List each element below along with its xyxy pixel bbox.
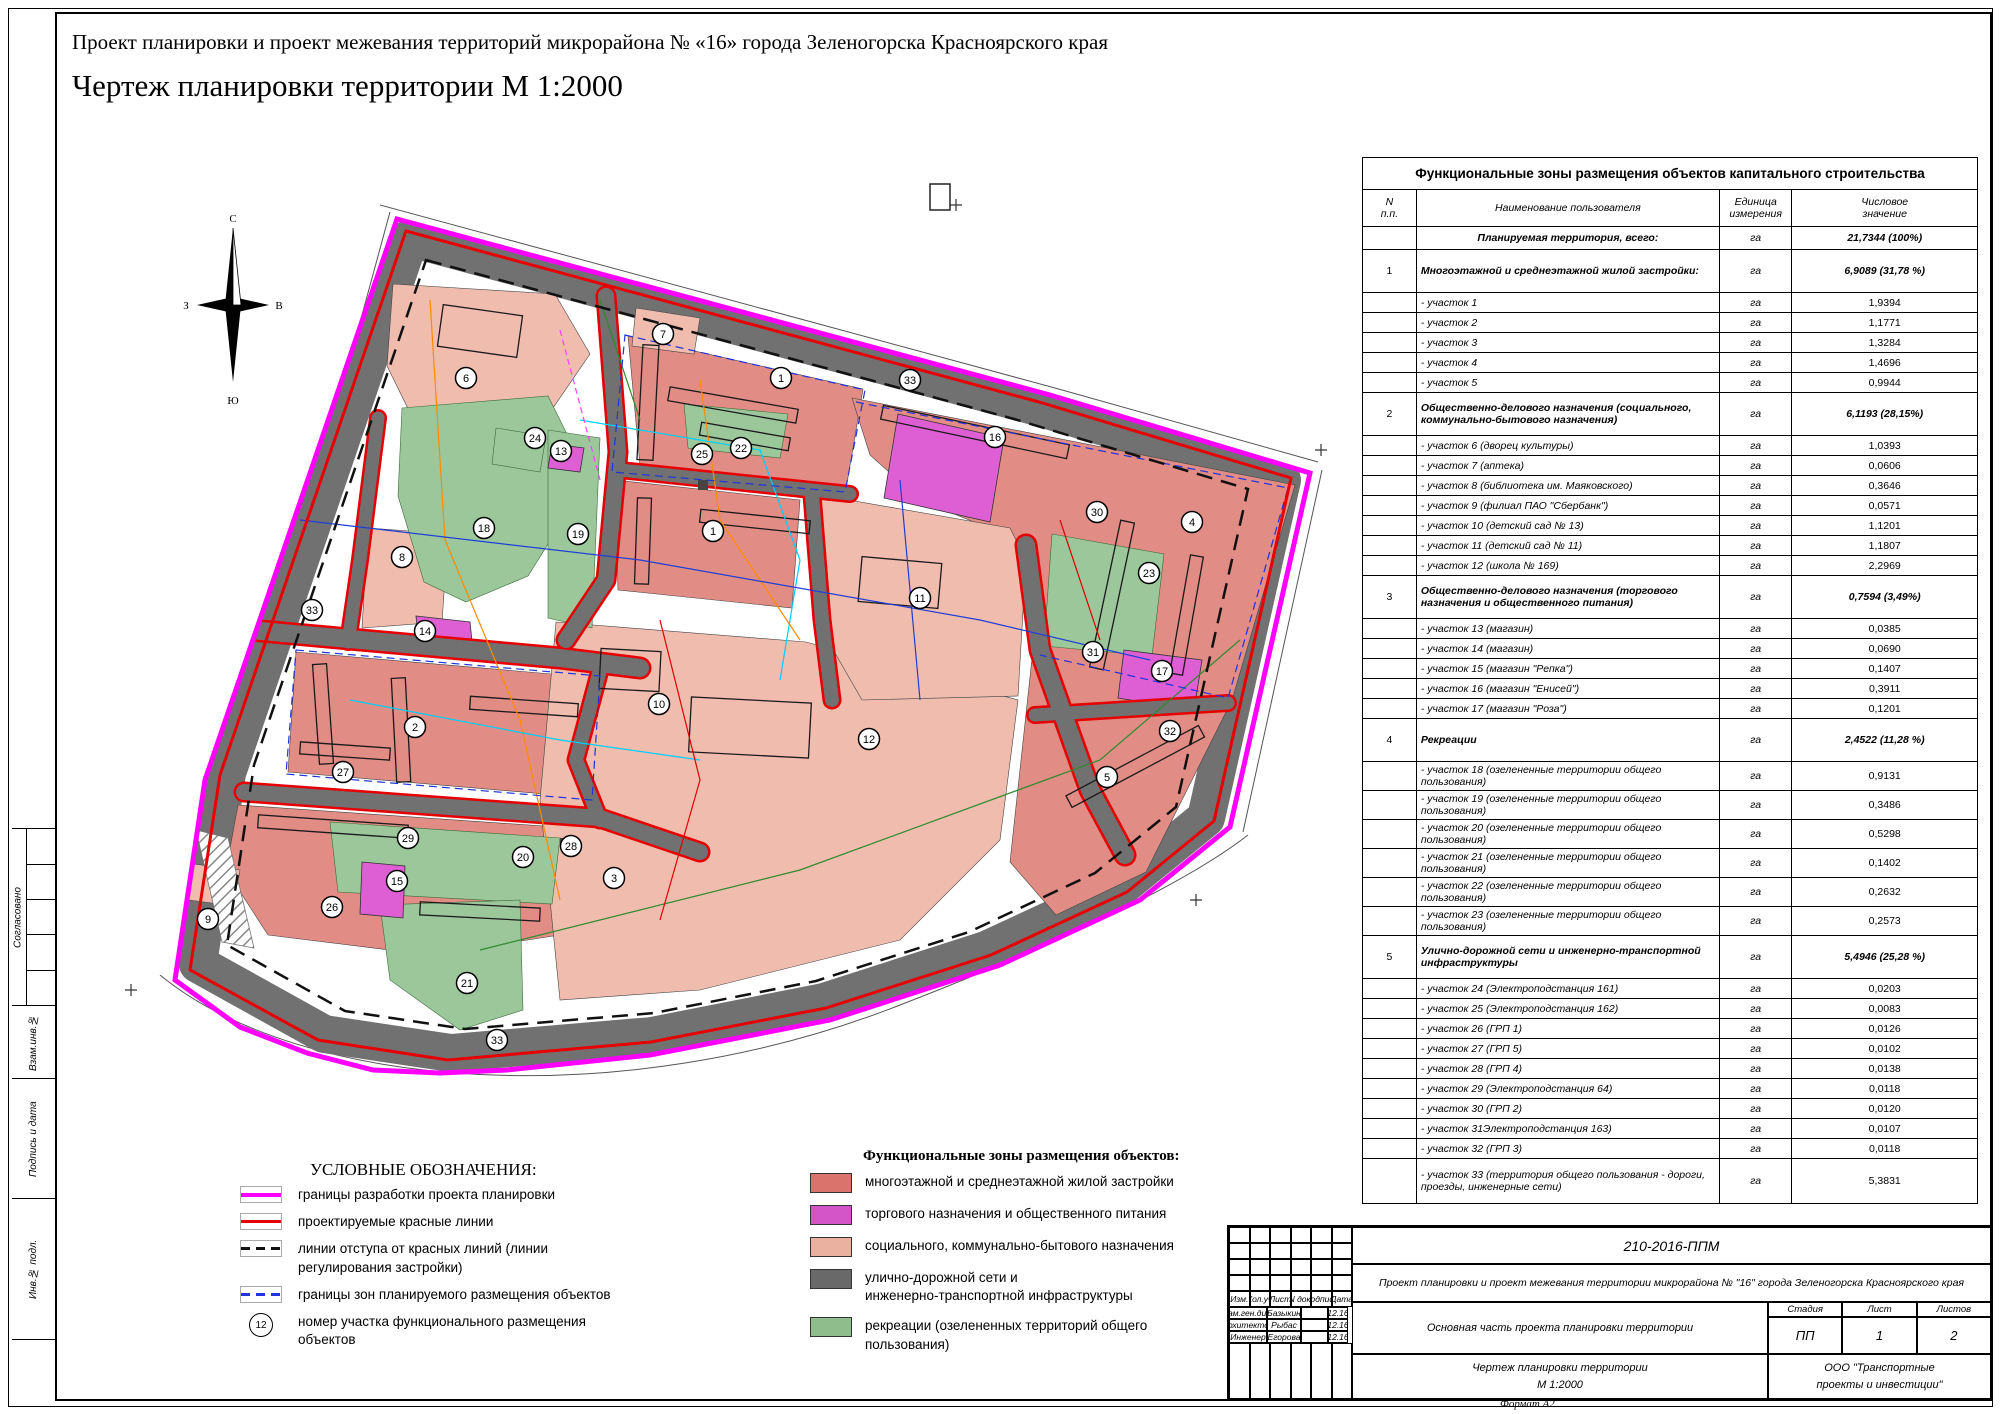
table-row: 5Улично-дорожной сети и инженерно-трансп… (1363, 936, 1978, 979)
plot-label-number: 5 (1104, 772, 1110, 784)
revision-header-cell: Изм. (1229, 1291, 1250, 1307)
project-title: Проект планировки и проект межевания тер… (72, 30, 1108, 55)
table-row: - участок 33 (территория общего пользова… (1363, 1159, 1978, 1204)
territory-plan-map: С Ю З В 67133162413252218191830423113314… (85, 160, 1355, 1100)
legend-zone-item: рекреации (озелененных территорий общего… (810, 1317, 1230, 1353)
strip-label-approved: Согласовано (10, 829, 26, 1006)
table-row: - участок 2га1,1771 (1363, 313, 1978, 333)
table-row: - участок 20 (озелененные территории общ… (1363, 820, 1978, 849)
table-row: 4Рекреациига2,4522 (11,28 %) (1363, 719, 1978, 762)
col-header-unit: Единица измерения (1719, 190, 1791, 227)
table-row: - участок 1га1,9394 (1363, 293, 1978, 313)
plot-label-number: 33 (306, 605, 318, 617)
table-row: 2Общественно-делового назначения (социал… (1363, 393, 1978, 436)
table-row: 3Общественно-делового назначения (торгов… (1363, 576, 1978, 619)
strip-podpis-box: Подпись и дата (12, 1078, 55, 1199)
strip-vzam-box: Взам.инв.№ (12, 1005, 55, 1079)
stamp-project-name: Проект планировки и проект межевания тер… (1352, 1264, 1991, 1302)
setback-line-swatch (240, 1240, 282, 1257)
zoneborder-line-swatch (240, 1286, 282, 1303)
plot-label-number: 21 (461, 978, 473, 990)
plot-number-symbol: 12 (249, 1313, 273, 1337)
sheets-value: 2 (1917, 1317, 1991, 1354)
plot-label-number: 26 (326, 902, 338, 914)
plot-label-number: 29 (402, 833, 414, 845)
plot-label-number: 6 (463, 373, 469, 385)
staff-row: ИнженерЕгорова12.16 (1229, 1331, 1352, 1343)
table-row: - участок 12 (школа № 169)га2,2969 (1363, 556, 1978, 576)
revision-header-cell: N док. (1291, 1291, 1312, 1307)
plot-label-number: 2 (412, 722, 418, 734)
legend-zones-title: Функциональные зоны размещения объектов: (863, 1148, 1230, 1165)
table-row: - участок 31Электроподстанция 163)га0,01… (1363, 1119, 1978, 1139)
boundary-line-swatch (240, 1186, 282, 1203)
plot-label-number: 7 (660, 329, 666, 341)
map-stamp-symbol (930, 184, 950, 210)
legend-zone-label: рекреации (озелененных территорий общего… (865, 1317, 1147, 1353)
table-row: - участок 26 (ГРП 1)га0,0126 (1363, 1019, 1978, 1039)
plot-label-number: 8 (399, 552, 405, 564)
legend-zone-label: многоэтажной и среднеэтажной жилой застр… (865, 1173, 1174, 1191)
table-row: - участок 13 (магазин)га0,0385 (1363, 619, 1978, 639)
strip-label-inv: Инв.№ подл. (12, 1199, 55, 1339)
legend-zone-item: улично-дорожной сети и инженерно-транспо… (810, 1269, 1230, 1305)
plot-label-number: 33 (904, 375, 916, 387)
table-row: Планируемая территория, всего:га21,7344 … (1363, 227, 1978, 250)
plot-label-number: 30 (1091, 507, 1103, 519)
table-row: - участок 18 (озелененные территории общ… (1363, 762, 1978, 791)
table-row: - участок 9 (филиал ПАО "Сбербанк")га0,0… (1363, 496, 1978, 516)
plot-label-number: 4 (1189, 517, 1195, 529)
stamp-drawing-name: Чертеж планировки территории М 1:2000 (1352, 1354, 1768, 1399)
zone-residential-1b (615, 480, 800, 608)
zone-color-swatch (810, 1173, 852, 1193)
revision-header-cell: Кол.уч (1250, 1291, 1271, 1307)
compass-west-label: З (183, 300, 189, 312)
plot-label-number: 28 (565, 841, 577, 853)
plot-label-number: 1 (778, 373, 784, 385)
col-header-num: N п.п. (1363, 190, 1417, 227)
table-row: - участок 16 (магазин "Енисей")га0,3911 (1363, 679, 1978, 699)
table-row: 1Многоэтажной и среднеэтажной жилой заст… (1363, 250, 1978, 293)
plot-label-number: 16 (989, 432, 1001, 444)
plot-label-number: 13 (555, 446, 567, 458)
table-row: - участок 21 (озелененные территории общ… (1363, 849, 1978, 878)
zone-color-swatch (810, 1269, 852, 1289)
plot-label-number: 25 (696, 449, 708, 461)
drawing-sheet: Согласовано Взам.инв.№ Подпись и дата Ин… (0, 0, 2000, 1414)
table-row: - участок 19 (озелененные территории общ… (1363, 791, 1978, 820)
legend-symbols: УСЛОВНЫЕ ОБОЗНАЧЕНИЯ: границы разработки… (240, 1160, 660, 1359)
table-row: - участок 6 (дворец культуры)га1,0393 (1363, 436, 1978, 456)
table-row: - участок 30 (ГРП 2)га0,0120 (1363, 1099, 1978, 1119)
zone-green-23 (1044, 534, 1164, 656)
zone-color-swatch (810, 1317, 852, 1337)
col-header-name: Наименование пользователя (1416, 190, 1719, 227)
format-note: Формат А2 (1500, 1398, 1555, 1410)
plot-label-number: 20 (517, 852, 529, 864)
plot-label-number: 10 (653, 699, 665, 711)
revision-table: Изм.Кол.учЛистN док.ПодписьДата Зам.ген.… (1229, 1227, 1352, 1399)
table-row: - участок 32 (ГРП 3)га0,0118 (1363, 1139, 1978, 1159)
sheet-value: 1 (1842, 1317, 1916, 1354)
stage-value: ПП (1768, 1317, 1842, 1354)
col-header-value: Числовое значение (1792, 190, 1978, 227)
compass-east-label: В (275, 300, 282, 312)
compass-north-label: С (229, 213, 236, 225)
plot-label-number: 9 (205, 914, 211, 926)
functional-zones-table: Функциональные зоны размещения объектов … (1362, 157, 1978, 1204)
plot-label-number: 33 (491, 1035, 503, 1047)
table-row: - участок 15 (магазин "Репка")га0,1407 (1363, 659, 1978, 679)
strip-inv-box: Инв.№ подл. (12, 1198, 55, 1340)
stage-label: Стадия (1768, 1302, 1842, 1317)
legend-symbol-label: границы разработки проекта планировки (298, 1186, 555, 1204)
plot-label-number: 3 (611, 873, 617, 885)
drawing-title: Чертеж планировки территории М 1:2000 (72, 68, 623, 104)
revision-header-cell: Лист (1270, 1291, 1291, 1307)
legend-symbol-item: линии отступа от красных линий (линии ре… (240, 1240, 660, 1276)
revision-header-cell: Дата (1332, 1291, 1353, 1307)
table-row: - участок 3га1,3284 (1363, 333, 1978, 353)
plot-label-number: 15 (391, 876, 403, 888)
sheet-label: Лист (1842, 1302, 1916, 1317)
revision-header-cell: Подпись (1311, 1291, 1332, 1307)
stamp-section-name: Основная часть проекта планировки террит… (1352, 1302, 1768, 1354)
plot-label-number: 24 (529, 433, 541, 445)
legend-zone-item: торгового назначения и общественного пит… (810, 1205, 1230, 1225)
legend-symbol-item: 12номер участка функционального размещен… (240, 1313, 660, 1349)
table-row: - участок 7 (аптека)га0,0606 (1363, 456, 1978, 476)
plot-label-number: 14 (419, 626, 431, 638)
table-title: Функциональные зоны размещения объектов … (1363, 158, 1978, 190)
zone-color-swatch (810, 1237, 852, 1257)
plot-label-number: 18 (478, 523, 490, 535)
staff-row: Зам.ген.дир.Базыкин12.16 (1229, 1307, 1352, 1319)
legend-symbol-label: линии отступа от красных линий (линии ре… (298, 1240, 548, 1276)
legend-zone-label: социального, коммунально-бытового назнач… (865, 1237, 1174, 1255)
strip-label-vzam: Взам.инв.№ (12, 1006, 55, 1079)
plot-label-number: 12 (863, 734, 875, 746)
table-row: - участок 10 (детский сад № 13)га1,1201 (1363, 516, 1978, 536)
legend-zone-item: социального, коммунально-бытового назнач… (810, 1237, 1230, 1257)
legend-zone-label: торгового назначения и общественного пит… (865, 1205, 1166, 1223)
revision-header-row: Изм.Кол.учЛистN док.ПодписьДата (1229, 1291, 1352, 1307)
table-row: - участок 11 (детский сад № 11)га1,1807 (1363, 536, 1978, 556)
document-number: 210-2016-ППМ (1352, 1227, 1991, 1264)
plot-label-number: 32 (1164, 726, 1176, 738)
legend-zones: Функциональные зоны размещения объектов:… (810, 1148, 1230, 1366)
plot-label-number: 19 (572, 529, 584, 541)
plot-label-number: 11 (914, 593, 925, 605)
table-row: - участок 5га0,9944 (1363, 373, 1978, 393)
redline-line-swatch (240, 1213, 282, 1230)
legend-symbol-label: границы зон планируемого размещения объе… (298, 1286, 611, 1304)
table-header-row: N п.п. Наименование пользователя Единица… (1363, 190, 1978, 227)
sheets-label: Листов (1917, 1302, 1991, 1317)
table-row: - участок 22 (озелененные территории общ… (1363, 878, 1978, 907)
legend-symbols-title: УСЛОВНЫЕ ОБОЗНАЧЕНИЯ: (310, 1160, 660, 1180)
table-row: - участок 29 (Электроподстанция 64)га0,0… (1363, 1079, 1978, 1099)
zone-park-18 (398, 396, 566, 602)
stamp-organization: ООО "Транспортные проекты и инвестиции" (1768, 1354, 1991, 1399)
plot-label-number: 27 (337, 767, 349, 779)
table-row: - участок 14 (магазин)га0,0690 (1363, 639, 1978, 659)
table-row: - участок 28 (ГРП 4)га0,0138 (1363, 1059, 1978, 1079)
legend-symbol-item: границы разработки проекта планировки (240, 1186, 660, 1204)
legend-symbol-item: проектируемые красные линии (240, 1213, 660, 1231)
compass-icon: С Ю З В (183, 213, 282, 407)
plot-label-number: 22 (735, 443, 747, 455)
table-row: - участок 25 (Электроподстанция 162)га0,… (1363, 999, 1978, 1019)
legend-symbol-item: границы зон планируемого размещения объе… (240, 1286, 660, 1304)
strip-label-podpis: Подпись и дата (12, 1079, 55, 1199)
plot-label-number: 23 (1143, 568, 1155, 580)
compass-south-label: Ю (227, 395, 238, 407)
title-block: Изм.Кол.учЛистN док.ПодписьДата Зам.ген.… (1227, 1225, 1993, 1401)
table-row: - участок 17 (магазин "Роза")га0,1201 (1363, 699, 1978, 719)
plot-label-number: 31 (1087, 647, 1099, 659)
legend-zone-label: улично-дорожной сети и инженерно-транспо… (865, 1269, 1133, 1305)
table-row: - участок 23 (озелененные территории общ… (1363, 907, 1978, 936)
plot-label-number: 1 (710, 526, 716, 538)
table-row: - участок 24 (Электроподстанция 161)га0,… (1363, 979, 1978, 999)
legend-symbol-label: номер участка функционального размещения… (298, 1313, 586, 1349)
zone-color-swatch (810, 1205, 852, 1225)
plot-label-number: 17 (1156, 666, 1168, 678)
strip-approved-box: Согласовано (12, 828, 55, 1006)
staff-row: АрхитекторРыбас12.16 (1229, 1319, 1352, 1331)
legend-symbol-label: проектируемые красные линии (298, 1213, 493, 1231)
table-row: - участок 8 (библиотека им. Маяковского)… (1363, 476, 1978, 496)
table-row: - участок 27 (ГРП 5)га0,0102 (1363, 1039, 1978, 1059)
legend-zone-item: многоэтажной и среднеэтажной жилой застр… (810, 1173, 1230, 1193)
table-row: - участок 4га1,4696 (1363, 353, 1978, 373)
